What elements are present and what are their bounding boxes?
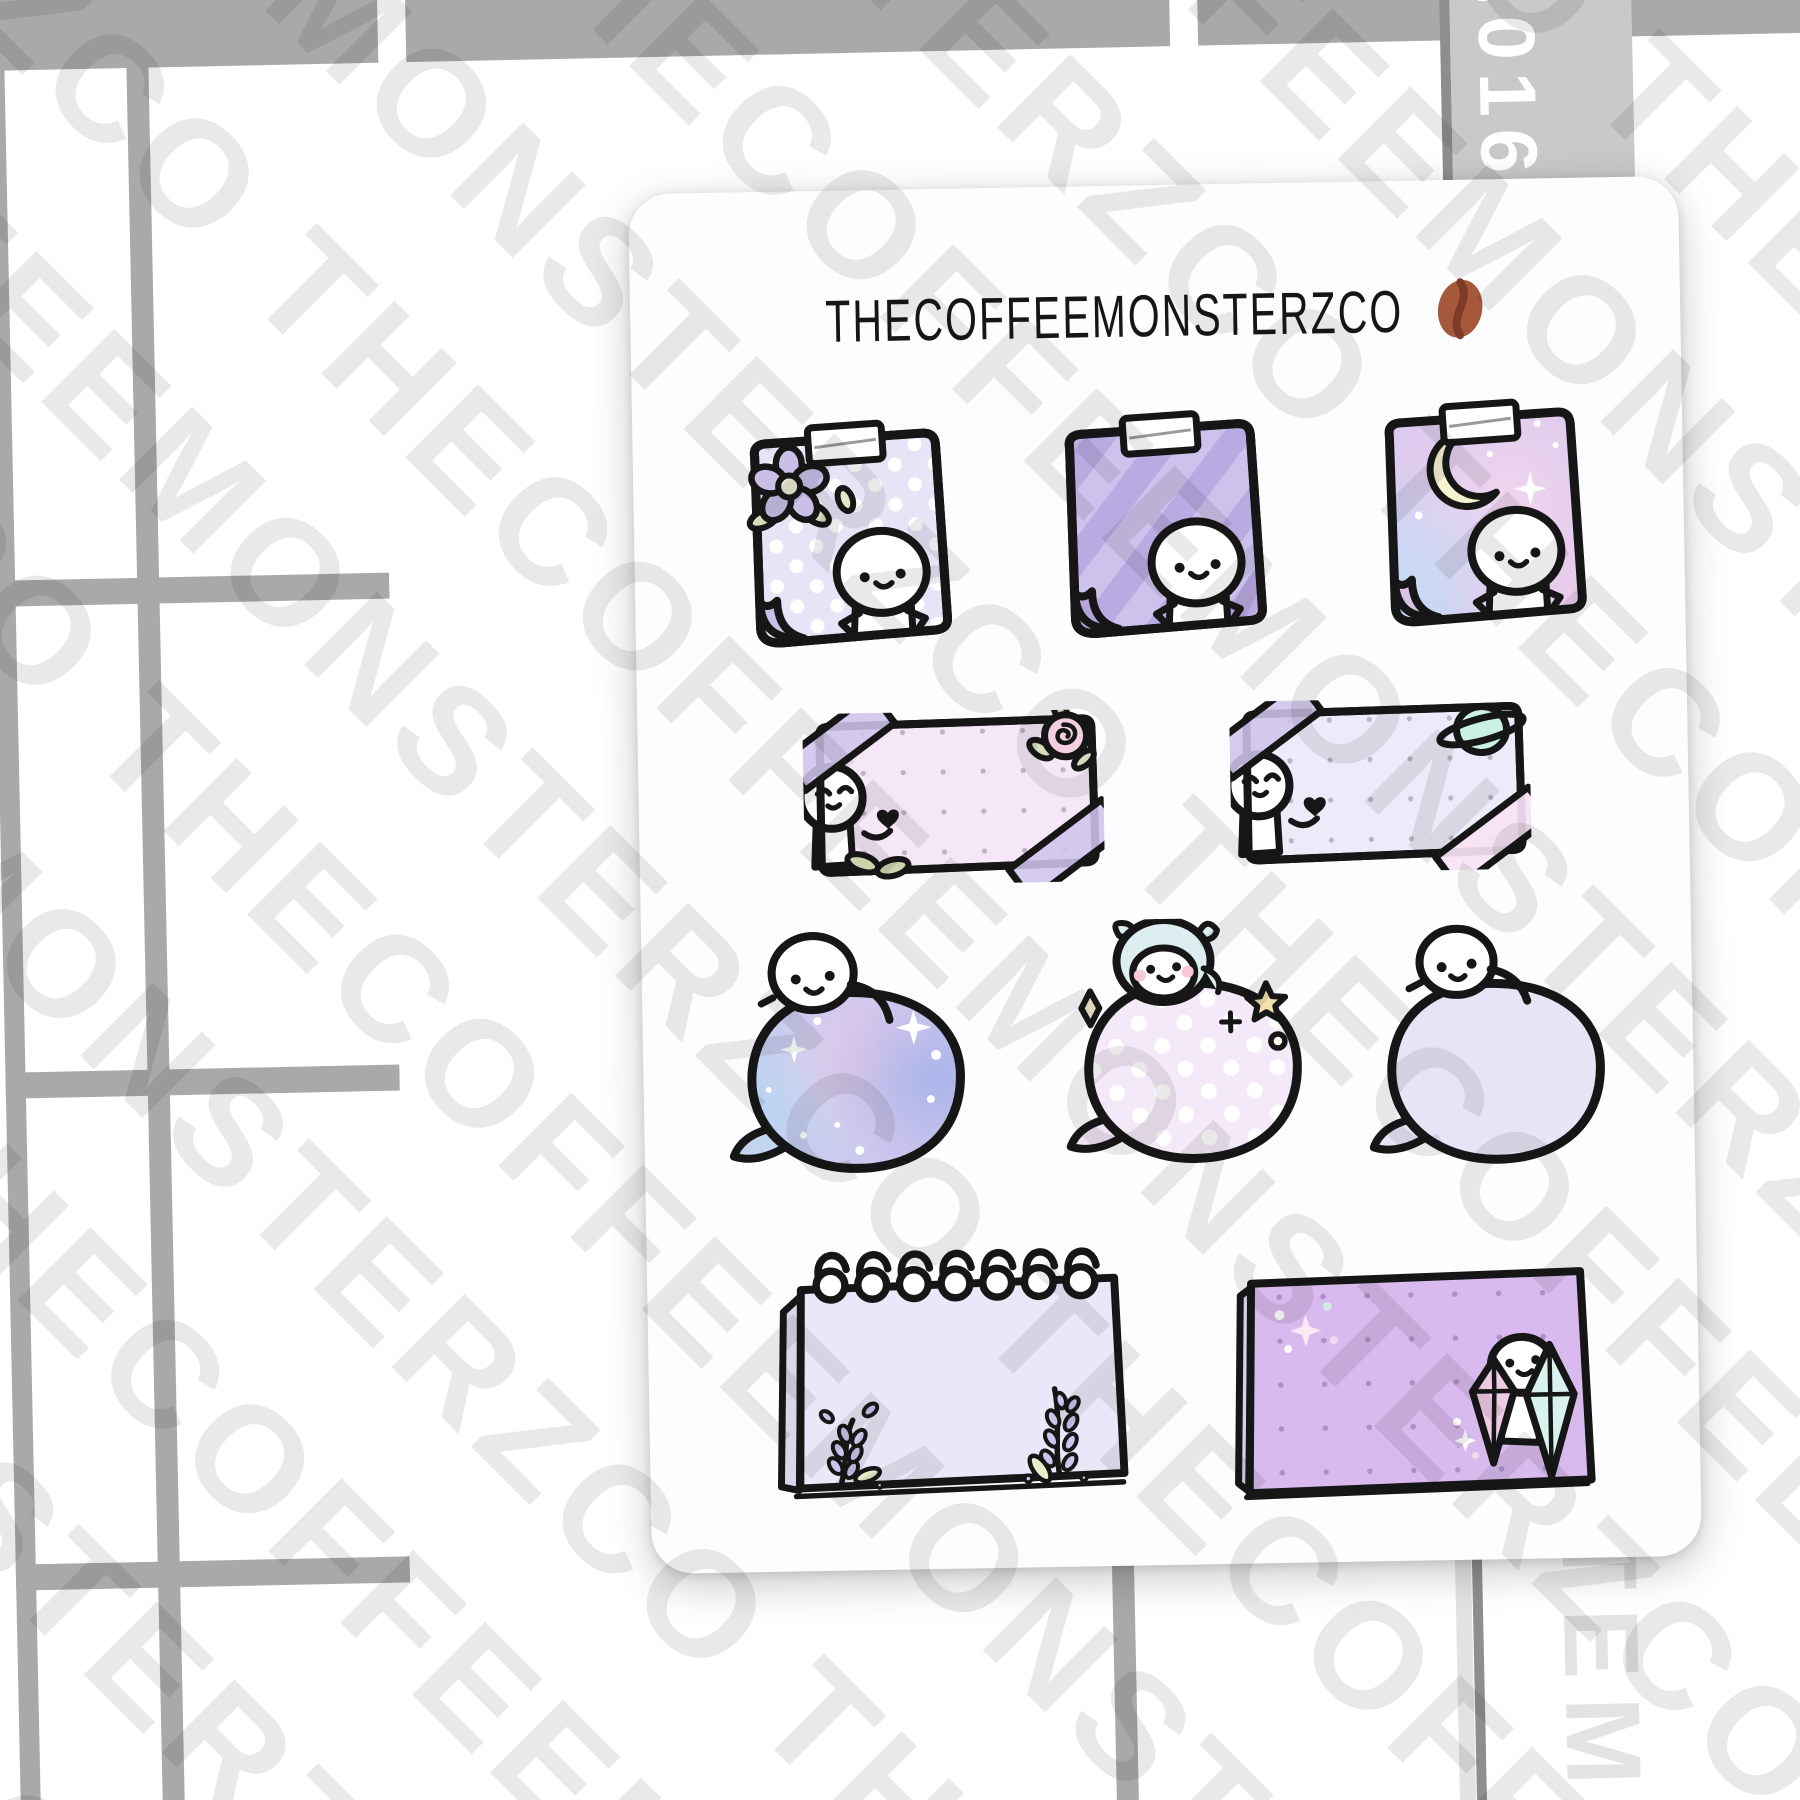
side-watermark-text: TEME	[1537, 1524, 1666, 1800]
planner-grid-line	[0, 573, 390, 607]
coffee-bean-icon	[1435, 276, 1486, 346]
sticker-sticky-note-galaxy-moon	[1355, 392, 1607, 636]
sticker-flip-notepad-sprigs	[756, 1236, 1133, 1508]
sticker-bubble-unicorn-polka	[1033, 916, 1328, 1183]
planner-grid-line	[126, 46, 189, 1800]
sticker-sheet: THECOFFEEMONSTERZCO	[628, 176, 1702, 1574]
sticker-washi-box-planet	[1229, 697, 1532, 874]
sticker-sticky-note-stripes	[1039, 404, 1283, 648]
sticker-washi-box-rose	[802, 709, 1105, 886]
product-photo: 2016/2 TEME THECOFFEEMONSTERZCO	[0, 0, 1800, 1800]
sticker-flip-notepad-crystals	[1212, 1226, 1601, 1511]
planner-grid-line	[1112, 1548, 1143, 1800]
sticker-bubble-plain	[1331, 917, 1636, 1184]
sticker-sticky-note-polka-flower	[724, 413, 968, 657]
planner-grid-line	[0, 49, 45, 1800]
planner-page-gap	[375, 0, 448, 1800]
sticker-bubble-galaxy	[696, 926, 991, 1193]
planner-grid-line	[5, 1065, 399, 1099]
brand-header: THECOFFEEMONSTERZCO	[630, 272, 1681, 360]
planner-grid-line	[16, 1556, 410, 1590]
brand-title: THECOFFEEMONSTERZCO	[825, 278, 1404, 356]
